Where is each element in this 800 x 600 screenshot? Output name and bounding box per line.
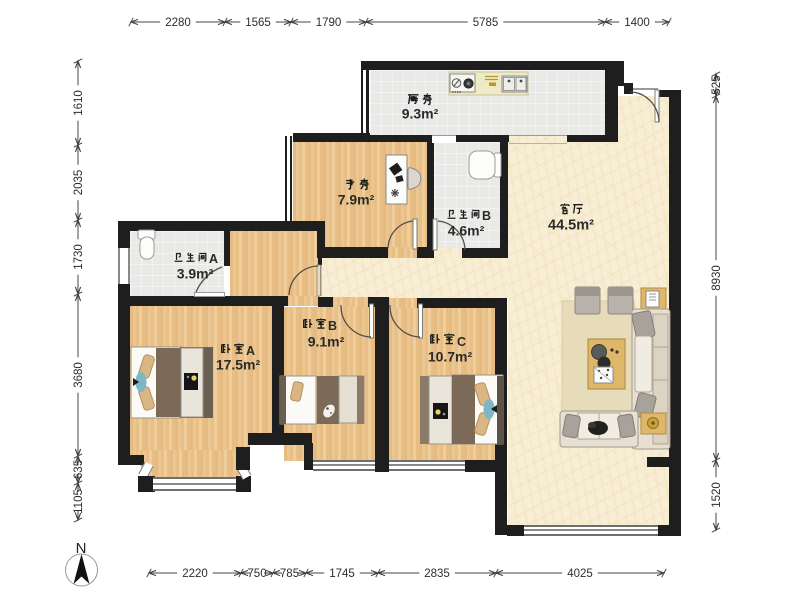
svg-text:3680: 3680 [73,362,85,388]
svg-text:2035: 2035 [73,170,85,196]
svg-text:2280: 2280 [165,17,191,29]
svg-text:1745: 1745 [329,568,355,580]
svg-text:635: 635 [73,460,85,479]
svg-text:1730: 1730 [73,244,85,270]
svg-text:1105: 1105 [73,489,85,514]
svg-text:8930: 8930 [711,265,723,291]
svg-text:1520: 1520 [711,482,723,508]
svg-text:5785: 5785 [473,17,499,29]
svg-text:2835: 2835 [424,568,450,580]
svg-text:1565: 1565 [245,17,271,29]
svg-text:525: 525 [711,75,723,94]
svg-text:1400: 1400 [624,17,650,29]
svg-text:1790: 1790 [316,17,342,29]
svg-text:750: 750 [247,568,266,580]
svg-text:785: 785 [280,568,299,580]
svg-text:4025: 4025 [567,568,593,580]
svg-text:2220: 2220 [182,568,208,580]
svg-text:1610: 1610 [73,90,85,116]
